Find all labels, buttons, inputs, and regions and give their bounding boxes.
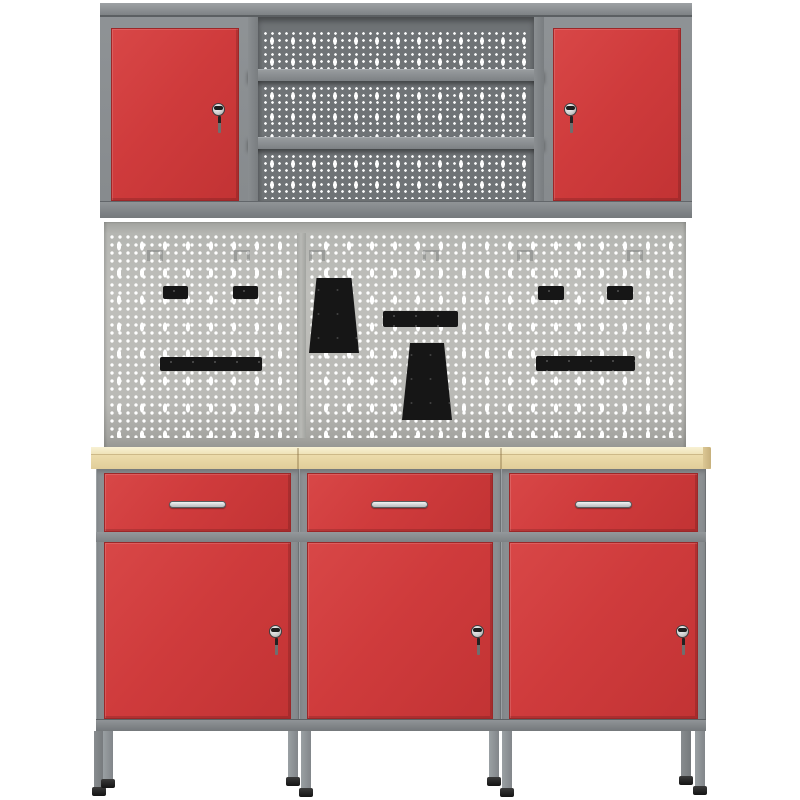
front-leg — [103, 731, 113, 783]
shelf-lower — [248, 137, 544, 149]
worktop-seam — [500, 448, 502, 469]
adjustable-foot — [101, 779, 115, 788]
adjustable-foot — [693, 786, 707, 795]
pegboard-hanger-icon — [517, 250, 533, 261]
wall-cabinet-right-door — [553, 28, 681, 201]
hanging-key-icon — [570, 116, 573, 133]
front-leg — [489, 731, 499, 781]
wall-cabinet — [100, 3, 692, 218]
module-bottom-rail — [299, 719, 501, 731]
pegboard-perforation — [108, 233, 682, 438]
pegboard-hanger-icon — [627, 250, 643, 261]
cabinet-door — [104, 542, 291, 719]
door-lock-icon — [471, 625, 484, 638]
adjustable-foot — [679, 776, 693, 785]
drawer-front — [509, 473, 698, 532]
center-post-left — [248, 17, 258, 201]
adjustable-foot — [487, 777, 501, 786]
wall-cabinet-left-door — [111, 28, 239, 201]
drawer-front — [307, 473, 493, 532]
perforated-back-panel-top — [262, 30, 530, 69]
hanging-key-icon — [218, 116, 221, 133]
adjustable-foot — [286, 777, 300, 786]
shelf-upper — [248, 69, 544, 81]
module-mid-rail — [299, 532, 501, 542]
door-lock-icon — [269, 625, 282, 638]
pegboard-wall — [104, 222, 686, 455]
module-bottom-rail — [96, 719, 299, 731]
front-leg — [502, 731, 512, 792]
wall-cabinet-bottom-rail — [100, 201, 692, 218]
worktop-seam — [297, 448, 299, 469]
drawer-handle — [575, 501, 632, 508]
perforated-back-panel-middle — [262, 85, 530, 137]
cabinet-door — [509, 542, 698, 719]
tool-holder-taper-2 — [402, 343, 452, 420]
right-door-lock-icon — [564, 103, 577, 116]
worktop-front-face — [91, 455, 711, 469]
tool-holder-bar-1 — [160, 357, 262, 371]
drawer-handle — [371, 501, 428, 508]
adjustable-foot — [299, 788, 313, 797]
adjustable-foot — [92, 787, 106, 796]
workshop-cabinet-system — [0, 0, 800, 800]
rear-leg — [681, 731, 691, 780]
module-mid-rail — [96, 532, 299, 542]
tool-holder-small-3 — [538, 286, 564, 300]
pegboard-hanger-icon — [309, 250, 325, 261]
tool-holder-bar-2 — [383, 311, 458, 327]
worktop — [91, 447, 711, 469]
workbench-module-3 — [501, 469, 706, 731]
module-bottom-rail — [501, 719, 706, 731]
tool-holder-bar-3 — [536, 356, 635, 371]
tool-holder-small-4 — [607, 286, 633, 300]
pegboard-hanger-icon — [423, 250, 439, 261]
workbench-module-2 — [299, 469, 501, 731]
front-leg — [695, 731, 705, 790]
module-mid-rail — [501, 532, 706, 542]
wall-cabinet-top-rail — [100, 3, 692, 17]
pegboard-hanger-icon — [147, 250, 163, 261]
workbench-module-1 — [96, 469, 299, 731]
tool-holder-small-2 — [233, 286, 258, 299]
tool-holder-small-1 — [163, 286, 188, 299]
pegboard-panel-seam — [297, 233, 306, 438]
pegboard-hanger-icon — [234, 250, 250, 261]
adjustable-foot — [500, 788, 514, 797]
drawer-front — [104, 473, 291, 532]
worktop-top-edge — [91, 447, 711, 455]
door-lock-icon — [676, 625, 689, 638]
hanging-key-icon — [682, 638, 685, 655]
perforated-back-panel-bottom — [262, 153, 530, 199]
front-leg — [288, 731, 298, 781]
center-post-right — [534, 17, 544, 201]
front-leg — [301, 731, 311, 792]
drawer-handle — [169, 501, 226, 508]
hanging-key-icon — [275, 638, 278, 655]
hanging-key-icon — [477, 638, 480, 655]
cabinet-door — [307, 542, 493, 719]
left-door-lock-icon — [212, 103, 225, 116]
worktop-right-edge — [703, 447, 711, 469]
tool-holder-taper-1 — [309, 278, 359, 353]
